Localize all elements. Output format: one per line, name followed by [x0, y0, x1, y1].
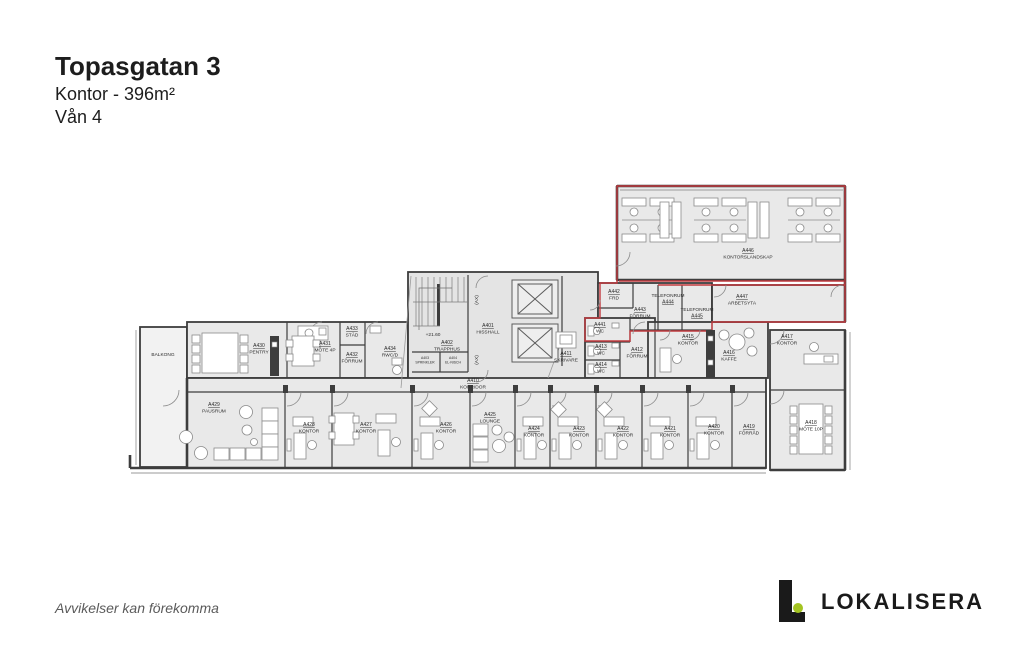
room-id: A446	[742, 248, 754, 254]
room-name: KONTOR	[356, 429, 377, 435]
room-name: PAUSRUM	[202, 409, 226, 415]
room-name: LOUNGE	[480, 419, 500, 425]
room-name: WC	[597, 351, 606, 357]
room-name: PENTRY	[249, 350, 269, 356]
room-id: A402	[441, 340, 453, 346]
floor-label: Vån 4	[55, 107, 221, 128]
room-id: A411	[560, 351, 572, 357]
room-id: A419	[743, 424, 755, 430]
room-id: A412	[631, 347, 643, 353]
room-id: A430	[253, 343, 265, 349]
room-name: MÖTE 10P	[799, 426, 823, 433]
room-id: A447	[736, 294, 748, 300]
room-name: KONTOR	[660, 433, 681, 439]
level-marker: +21.60	[426, 332, 441, 338]
room-id: A445	[691, 314, 703, 320]
room-name: KONTOR	[613, 433, 634, 439]
balcony-label: BALKONG	[151, 352, 174, 358]
shaft-label: (AX)	[474, 355, 480, 365]
room-id: A428	[303, 422, 315, 428]
room-name: EL-NISCH	[445, 361, 461, 365]
room-id: A427	[360, 422, 372, 428]
room-name: ARBETSYTA	[728, 301, 757, 307]
lokalisera-l-icon	[779, 580, 807, 624]
room-name: FÖRRÅD	[739, 430, 760, 437]
room-id: A433	[346, 326, 358, 332]
room-id: A414	[595, 362, 607, 368]
room-id: A401	[482, 323, 494, 329]
room-id: A415	[682, 334, 694, 340]
room-name: TELEFONRUM	[680, 307, 713, 313]
room-id: A424	[528, 426, 540, 432]
room-name: TRAPPHUS	[434, 347, 460, 353]
room-id: A426	[440, 422, 452, 428]
room-name: KONTOR	[299, 429, 320, 435]
room-name: TELEFONRUM	[651, 293, 684, 299]
room-id: A413	[595, 344, 607, 350]
room-name: FÖRRUM	[341, 358, 362, 365]
room-name: SKRIVARE	[554, 358, 578, 364]
room-name: HISSHALL	[476, 330, 500, 336]
brand-logo: LOKALISERA	[779, 580, 984, 624]
room-id: A429	[208, 402, 220, 408]
room-id: A403	[421, 356, 429, 360]
room-id: A434	[384, 346, 396, 352]
room-id: A416	[723, 350, 735, 356]
room-name: KONTORSLANDSKAP	[723, 255, 772, 261]
room-name: KONTOR	[524, 433, 545, 439]
title-block: Topasgatan 3 Kontor - 396m² Vån 4	[55, 52, 221, 128]
room-name: WC	[596, 329, 605, 335]
page-subtitle: Kontor - 396m²	[55, 84, 221, 105]
shaft-label: (AX)	[474, 295, 480, 305]
room-name: KONTOR	[678, 341, 699, 347]
room-name: FÖRRUM	[626, 353, 647, 360]
disclaimer-text: Avvikelser kan förekomma	[55, 600, 219, 616]
room-name: KONTOR	[569, 433, 590, 439]
room-name: KONTOR	[704, 431, 725, 437]
room-name: WC	[597, 369, 606, 375]
room-id: A425	[484, 412, 496, 418]
room-id: A421	[664, 426, 676, 432]
room-id: A410	[467, 378, 479, 384]
room-name: FRD	[609, 296, 619, 302]
room-id: A431	[319, 341, 331, 347]
room-name: KONTOR	[436, 429, 457, 435]
room-id: A422	[617, 426, 629, 432]
page-title: Topasgatan 3	[55, 52, 221, 82]
room-id: A444	[662, 300, 674, 306]
room-name: FÖRRUM	[629, 313, 650, 320]
room-name: SPRINKLER	[415, 361, 435, 365]
room-name: KAFFE	[721, 357, 736, 363]
room-id: A442	[608, 289, 620, 295]
room-id: A418	[805, 420, 817, 426]
room-id: A423	[573, 426, 585, 432]
room-id: A432	[346, 352, 358, 358]
brand-name: LOKALISERA	[821, 589, 984, 615]
room-id: A404	[449, 356, 457, 360]
room-id: A443	[634, 307, 646, 313]
room-name: KONTOR	[777, 341, 798, 347]
room-id: A417	[781, 334, 793, 340]
room-name: KORRIDOR	[460, 385, 486, 391]
floorplan-page: Topasgatan 3 Kontor - 396m² Vån 4	[0, 0, 1024, 654]
balcony-area	[140, 327, 187, 467]
room-name: RWC/D	[382, 353, 399, 359]
room-name: MÖTE 4P	[314, 347, 335, 354]
room-id: A441	[594, 322, 606, 328]
room-id: A420	[708, 424, 720, 430]
room-name: STÄD	[346, 332, 359, 339]
